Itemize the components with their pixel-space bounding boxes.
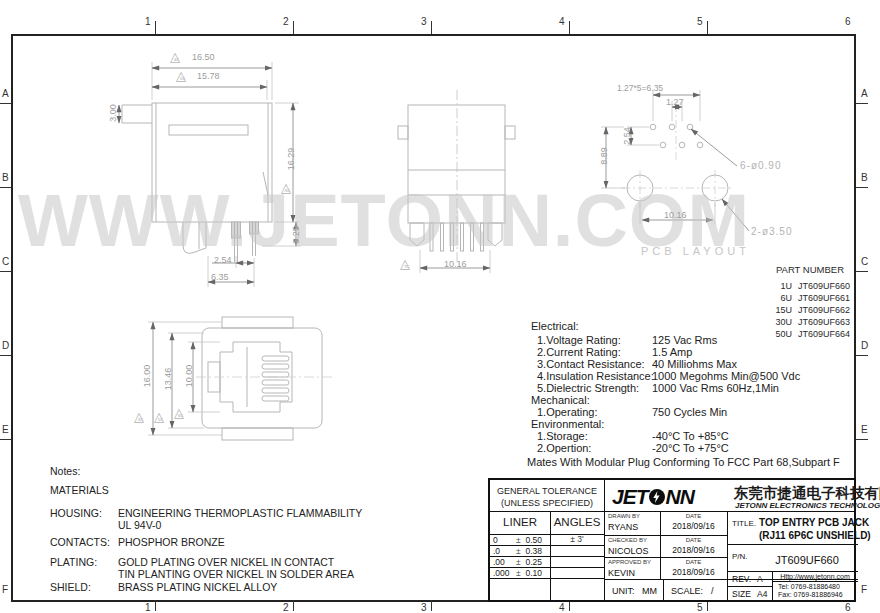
mating-note: Mates With Modular Plug Conforming To FC… — [527, 456, 840, 468]
engineering-drawing-page: 1 2 3 4 5 6 1 2 3 4 5 6 A B C D E F A B … — [0, 0, 880, 613]
drawing-title-line2: (RJ11 6P6C UNSHIELD) — [759, 530, 855, 541]
fax: Fax: 0769-81886946 — [778, 591, 843, 598]
dim-width-inner: 15.78 — [197, 71, 220, 81]
url-cell: Http://www.jetonn.com — [772, 571, 858, 581]
revision-flag: △5C — [154, 411, 170, 425]
pn-cell: P/N. JT609UF660 — [727, 544, 858, 571]
revision-flag: △7C — [400, 258, 416, 272]
approved-by-cell: APPROVED BYKEVIN — [604, 557, 660, 579]
dim-hole-span: 10.16 — [664, 210, 687, 220]
revision-flag: △6C — [174, 407, 190, 421]
spec-section-header: Electrical: — [531, 320, 579, 332]
spec-section-header: Environmental: — [531, 418, 604, 430]
company-name-en: JETONN ELECTRONICS TECHNOLOGY — [735, 501, 880, 510]
materials-header: MATERIALS — [50, 484, 109, 496]
tolerance-row: 0±0.50 — [490, 534, 550, 545]
tolerance-angle: ± 3' — [550, 534, 604, 545]
dim-pitch: 1.27 — [666, 97, 684, 107]
dim-front-body: 13.46 — [163, 359, 173, 399]
revision-flag: △4C — [170, 51, 186, 65]
checked-by-cell: CHECKED BYNICOLOS — [604, 535, 660, 557]
drawn-date-cell: DATE2018/09/16 — [660, 511, 727, 535]
table-row: 6UJT609UF661 — [760, 292, 860, 304]
tel: Tel: 0769-81886480 — [778, 583, 840, 590]
dim-pin-height: 3.25 — [291, 215, 301, 255]
revision-flag: △5C — [176, 70, 192, 84]
size-cell: SIZE A4 — [727, 586, 772, 600]
approved-date-cell: DATE2018/09/16 — [660, 557, 727, 579]
tolerance-col-liner: LINER — [490, 512, 550, 534]
dim-pcb-height: 8.89 — [599, 136, 609, 176]
unit-cell: UNIT: MM — [604, 579, 663, 600]
tolerance-row: .0±0.38 — [490, 545, 550, 556]
dim-height: 16.29 — [286, 139, 296, 179]
drawing-title-line1: TOP ENTRY PCB JACK — [759, 517, 855, 528]
dim-rear-span: 10.16 — [444, 259, 467, 269]
tel-fax-cell: Tel: 0769-81886480 Fax: 0769-81886946 — [772, 581, 858, 600]
scale-cell: SCALE: / — [663, 579, 727, 600]
dim-pitch-total: 1.27*5=6.35 — [617, 83, 663, 93]
revision-flag: △6C — [281, 182, 297, 196]
spec-section-header: Mechanical: — [531, 394, 590, 406]
lightning-bolt-icon — [649, 489, 665, 505]
rev-cell: REV. A — [727, 571, 772, 586]
title-cell: TITLE. TOP ENTRY PCB JACK (RJ11 6P6C UNS… — [727, 511, 858, 544]
dim-front-outer: 16.00 — [142, 356, 152, 396]
checked-date-cell: DATE2018/09/16 — [660, 535, 727, 557]
company-header: JETNN 东莞市捷通电子科技有限公司 JETONN ELECTRONICS T… — [604, 480, 858, 511]
callout-pin-holes: 6-ø0.90 — [740, 160, 781, 171]
table-row: 15UJT609UF662 — [760, 304, 860, 316]
website-url: Http://www.jetonn.com — [772, 573, 858, 580]
tolerance-header: GENERAL TOLERANCE (UNLESS SPECIFIED) — [490, 480, 604, 511]
part-number: JT609UF660 — [759, 554, 855, 566]
dim-latch: 3.00 — [108, 93, 118, 133]
dim-pin-pitch: 2.54 — [214, 255, 232, 265]
title-block: GENERAL TOLERANCE (UNLESS SPECIFIED) LIN… — [488, 478, 856, 602]
table-row: 1UJT609UF660 — [760, 280, 860, 292]
dim-row-gap: 2.54 — [622, 116, 632, 156]
tolerance-row: .000±0.10 — [490, 567, 550, 578]
pcb-layout-label: PCB LAYOUT — [641, 245, 750, 257]
revision-flag: △4C — [134, 411, 150, 425]
dim-front-opening: 10.00 — [184, 356, 194, 396]
notes-title: Notes: — [50, 465, 80, 477]
dim-pin-span: 6.35 — [211, 272, 229, 282]
tolerance-col-angles: ANGLES — [550, 512, 604, 534]
dim-width-outer: 16.50 — [192, 52, 215, 62]
tolerance-row: .00±0.25 — [490, 556, 550, 567]
part-table-title: PART NUMBER — [760, 264, 860, 275]
jetonn-logo: JETNN — [612, 485, 694, 509]
callout-mount-holes: 2-ø3.50 — [751, 226, 792, 237]
drawn-by-cell: DRAWN BYRYANS — [604, 511, 660, 535]
